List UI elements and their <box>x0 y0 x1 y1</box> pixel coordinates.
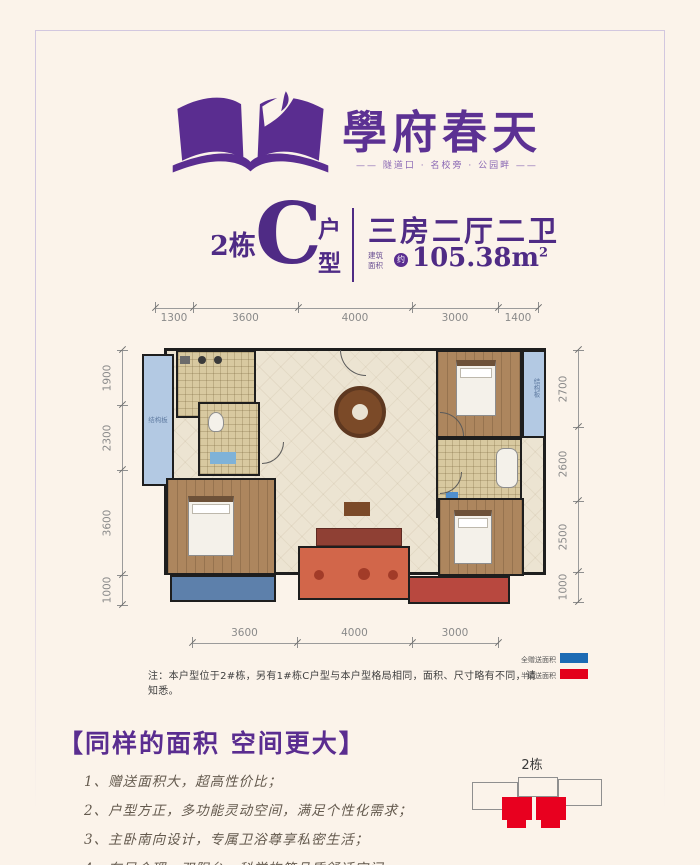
dim-right-3: 2500 <box>554 501 572 572</box>
structural-panel-left: 结构板 <box>142 354 174 486</box>
dim-bottom-1: 3600 <box>192 626 297 640</box>
dim-top-2: 3600 <box>193 311 298 325</box>
structural-label-left: 结构板 <box>144 414 172 424</box>
planter <box>358 568 370 580</box>
dim-line-top <box>155 308 538 309</box>
dining-table-center <box>352 404 368 420</box>
stove-burner <box>198 356 206 364</box>
selling-point-4: 4、布局合理，双阳台，科学构筑品质舒适空间。 <box>84 857 398 865</box>
structural-panel-right: 结构板 <box>522 350 546 438</box>
bathroom-left <box>198 402 260 476</box>
dim-left-1: 1900 <box>98 350 116 405</box>
legend-full-gift-swatch <box>560 653 588 663</box>
dim-left-3: 3600 <box>98 470 116 575</box>
dining-table <box>334 386 386 438</box>
locator-highlight-tab <box>507 820 526 828</box>
structural-label-right: 结构板 <box>531 378 541 398</box>
dim-top-4: 3000 <box>412 311 498 325</box>
area-label-top: 建筑 <box>368 251 383 261</box>
bed <box>454 510 492 564</box>
area-label-bottom: 面积 <box>368 261 383 271</box>
legend-half-gift-label: 半赠送面积 <box>500 671 556 681</box>
sofa <box>316 528 402 546</box>
locator-building-label: 2栋 <box>500 754 564 773</box>
planter <box>314 570 324 580</box>
legend-full-gift-label: 全赠送面积 <box>500 655 556 665</box>
brand-tagline: —— 隧道口 · 名校旁 · 公园畔 —— <box>332 158 562 171</box>
legend-half-gift-swatch <box>560 669 588 679</box>
planter <box>388 570 398 580</box>
balcony-half-gift-center <box>298 546 410 600</box>
brand-name: 學府春天 <box>342 96 557 161</box>
area-value: 105.38m2 <box>412 243 548 273</box>
bathtub <box>496 448 518 488</box>
dim-top-1: 1300 <box>155 311 193 325</box>
locator-highlight-block <box>502 797 532 820</box>
unit-type-word-top: 户 <box>318 210 341 244</box>
unit-building: 2栋 <box>210 224 256 263</box>
floorplan-poster: { "brand": { "logo_icon": "open-book-ico… <box>0 0 700 865</box>
selling-points-title: 【同样的面积 空间更大】 <box>58 724 366 760</box>
frame-right-line <box>664 30 665 810</box>
selling-point-2: 2、户型方正，多功能灵动空间，满足个性化需求； <box>84 799 413 819</box>
bath-mat <box>210 452 236 464</box>
unit-type-letter: C <box>255 192 322 276</box>
dim-line-left <box>122 350 123 605</box>
title-divider <box>352 208 354 282</box>
bed <box>188 496 234 556</box>
bed <box>456 360 496 416</box>
locator-highlight-block <box>536 797 566 820</box>
floorplan-drawing: 结构板 结构板 <box>140 346 550 608</box>
dim-right-1: 2700 <box>554 350 572 427</box>
balcony-full-gift <box>170 575 276 602</box>
bedroom-master <box>438 498 524 576</box>
dim-left-2: 2300 <box>98 405 116 470</box>
dim-top-5: 1400 <box>498 311 538 325</box>
stove-burner <box>214 356 222 364</box>
balcony-half-gift-south <box>408 576 510 604</box>
area-number: 105.38m <box>412 243 539 273</box>
dim-left-4: 1000 <box>98 575 116 605</box>
locator-highlight-tab <box>541 820 560 828</box>
selling-point-3: 3、主卧南向设计，专属卫浴尊享私密生活； <box>84 828 369 848</box>
disclaimer-note: 注：本户型位于2#栋，另有1#栋C户型与本户型格局相同，面积、尺寸略有不同，请知… <box>148 667 538 697</box>
dim-line-bottom <box>192 643 498 644</box>
open-book-icon <box>168 90 333 182</box>
selling-point-1: 1、赠送面积大，超高性价比； <box>84 770 282 790</box>
dim-top-3: 4000 <box>298 311 412 325</box>
dim-line-right <box>578 350 579 602</box>
area-label: 建筑 面积 <box>368 251 383 271</box>
toilet <box>208 412 224 432</box>
area-exponent: 2 <box>539 245 548 260</box>
building-locator-map <box>462 776 642 846</box>
kitchen-sink <box>180 356 190 364</box>
dim-right-4: 1000 <box>554 572 572 602</box>
bedroom-west <box>166 478 276 575</box>
frame-left-line <box>35 30 36 810</box>
dim-bottom-3: 3000 <box>412 626 498 640</box>
approx-circle-badge: 约 <box>394 253 408 267</box>
dim-bottom-2: 4000 <box>297 626 412 640</box>
frame-top-line <box>35 30 665 31</box>
coffee-table <box>344 502 370 516</box>
locator-wing-center <box>518 777 558 797</box>
unit-type-word-bottom: 型 <box>318 244 341 278</box>
dim-right-2: 2600 <box>554 427 572 501</box>
